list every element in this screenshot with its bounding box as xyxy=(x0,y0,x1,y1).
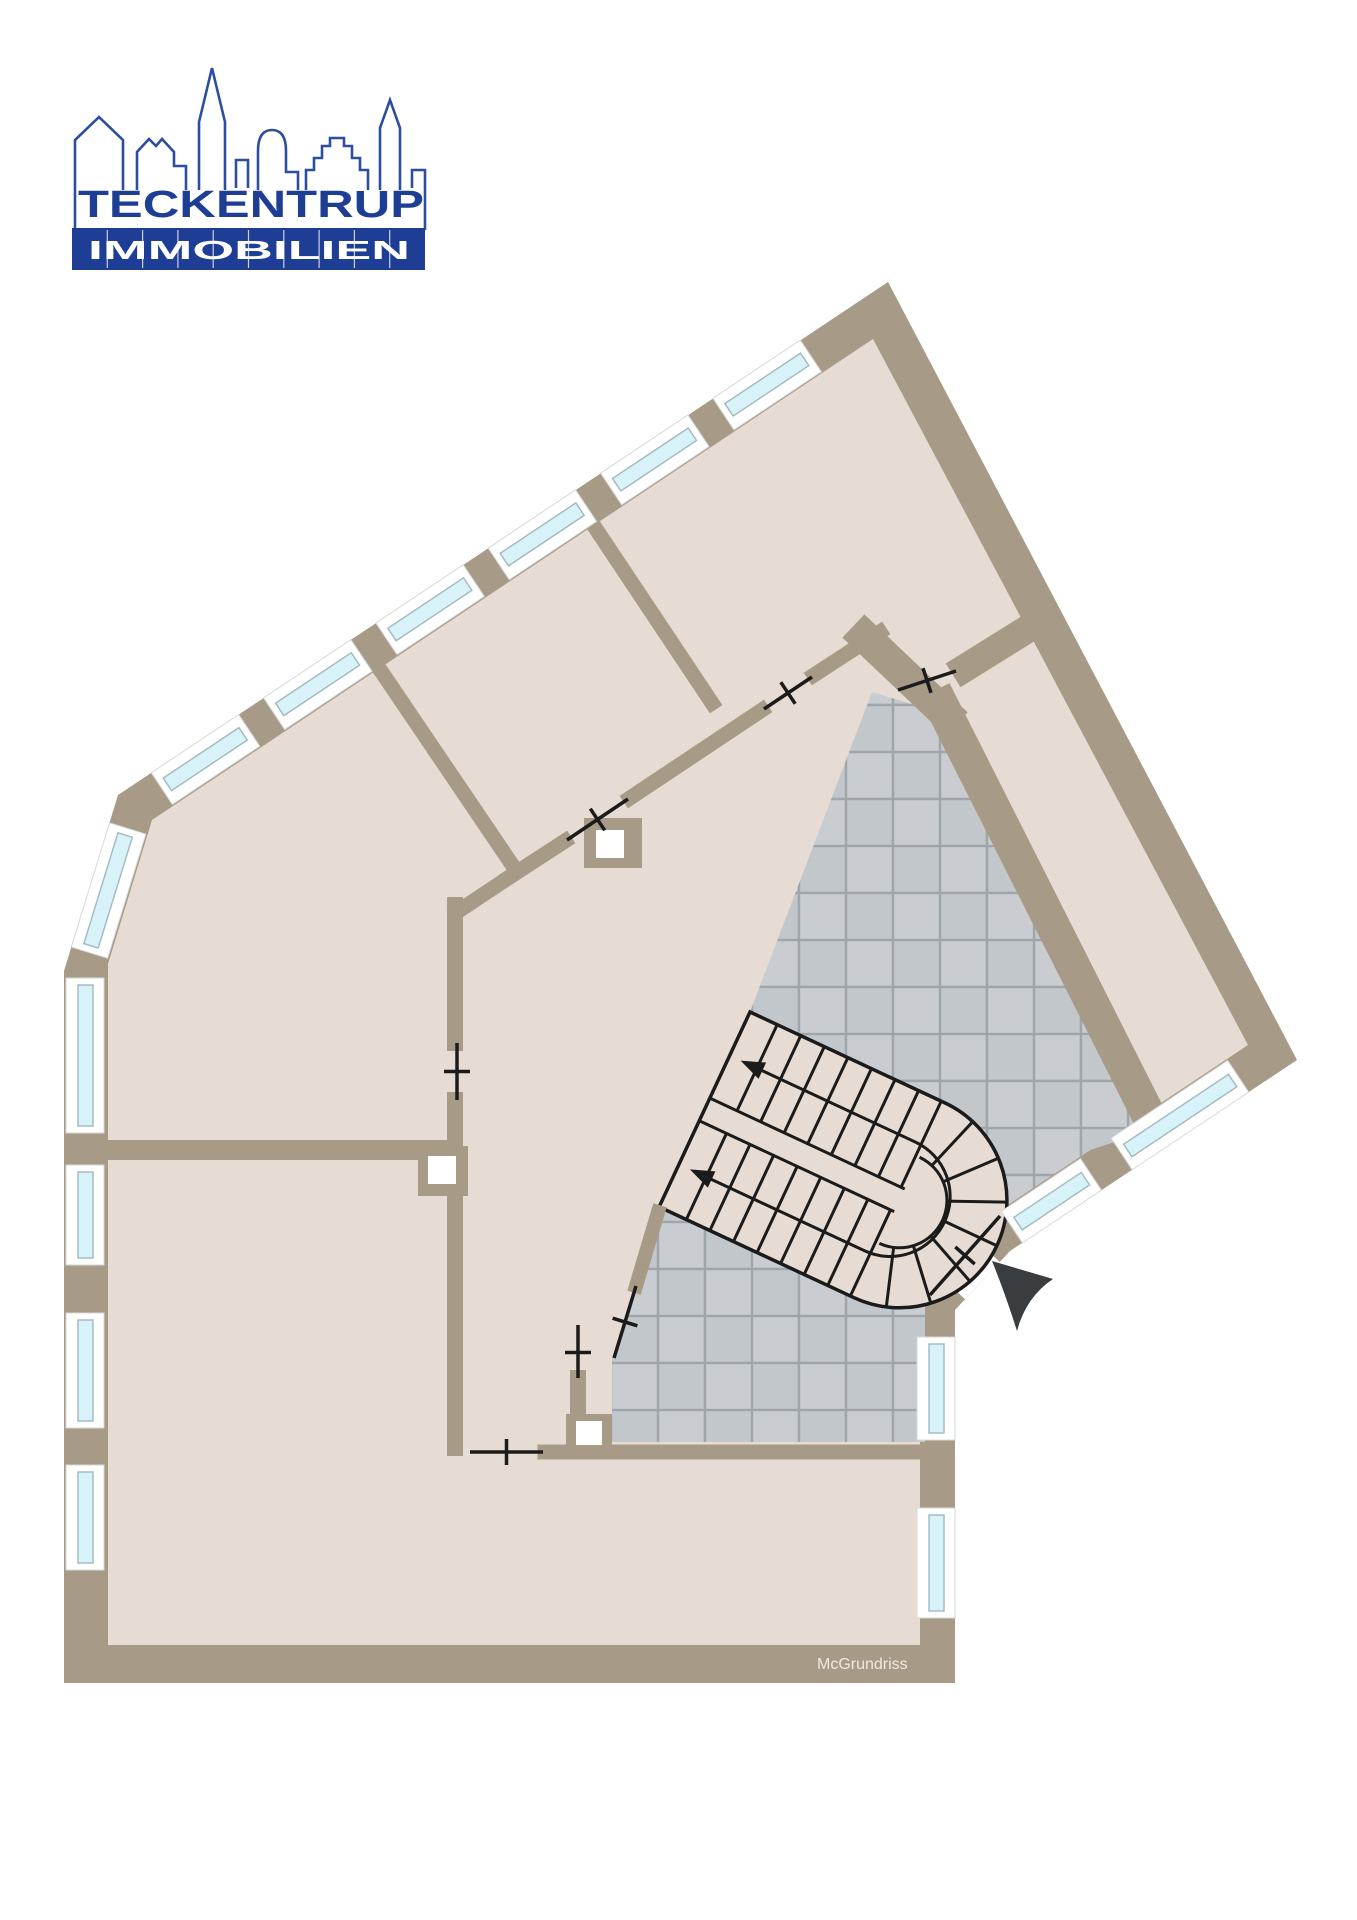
window xyxy=(78,1320,93,1421)
watermark-text: McGrundriss xyxy=(817,1656,908,1673)
logo-division-text: IMMOBILIEN xyxy=(88,235,410,265)
window xyxy=(929,1515,944,1611)
shaft-opening xyxy=(428,1156,456,1184)
window xyxy=(78,1172,93,1258)
window xyxy=(78,985,93,1126)
window xyxy=(78,1472,93,1563)
floorplan: McGrundriss xyxy=(64,282,1297,1683)
window xyxy=(929,1344,944,1433)
entrance-arrow-icon xyxy=(992,1261,1053,1331)
floorplan-page: TECKENTRUP IMMOBILIEN xyxy=(0,0,1357,1920)
shaft-opening xyxy=(596,830,624,858)
logo: TECKENTRUP IMMOBILIEN xyxy=(72,68,425,270)
logo-company-text: TECKENTRUP xyxy=(78,184,424,226)
shaft-opening xyxy=(576,1421,602,1445)
